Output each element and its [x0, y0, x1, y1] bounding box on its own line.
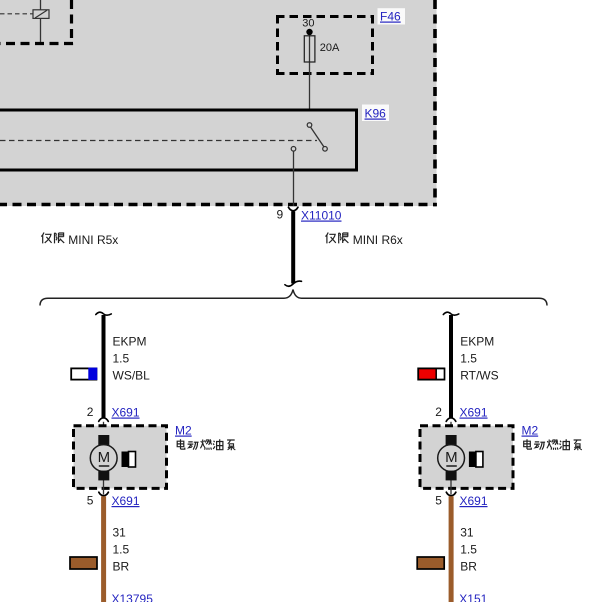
svg-text:X151: X151 [459, 592, 487, 602]
svg-text:RT/WS: RT/WS [460, 369, 498, 383]
svg-text:BR: BR [113, 560, 130, 574]
svg-text:1.5: 1.5 [113, 543, 130, 557]
svg-text:MINI R5x: MINI R5x [68, 233, 118, 247]
svg-text:MINI R6x: MINI R6x [353, 233, 403, 247]
svg-text:K96: K96 [365, 107, 387, 121]
svg-text:31: 31 [113, 526, 127, 540]
svg-text:M2: M2 [522, 424, 539, 438]
svg-text:X691: X691 [460, 406, 488, 420]
svg-text:30: 30 [302, 18, 314, 30]
svg-text:1.5: 1.5 [460, 543, 477, 557]
svg-text:1.5: 1.5 [460, 352, 477, 366]
svg-text:9: 9 [277, 208, 284, 222]
svg-text:EKPM: EKPM [460, 335, 494, 349]
svg-text:M: M [445, 449, 458, 466]
svg-text:M: M [98, 449, 111, 466]
svg-text:X13795: X13795 [112, 592, 154, 602]
svg-text:2: 2 [435, 405, 442, 419]
svg-text:X11010: X11010 [301, 209, 342, 223]
svg-text:WS/BL: WS/BL [113, 369, 151, 383]
svg-text:EKPM: EKPM [113, 335, 147, 349]
svg-text:31: 31 [460, 526, 474, 540]
svg-text:X691: X691 [112, 494, 140, 508]
svg-text:2: 2 [87, 405, 94, 419]
svg-text:X691: X691 [112, 406, 140, 420]
svg-text:5: 5 [87, 494, 94, 508]
svg-text:F46: F46 [380, 10, 401, 24]
svg-text:BR: BR [460, 560, 477, 574]
svg-text:1.5: 1.5 [113, 352, 130, 366]
svg-text:5: 5 [435, 494, 442, 508]
svg-text:20A: 20A [320, 42, 340, 54]
svg-text:M2: M2 [175, 424, 192, 438]
svg-text:X691: X691 [460, 494, 488, 508]
